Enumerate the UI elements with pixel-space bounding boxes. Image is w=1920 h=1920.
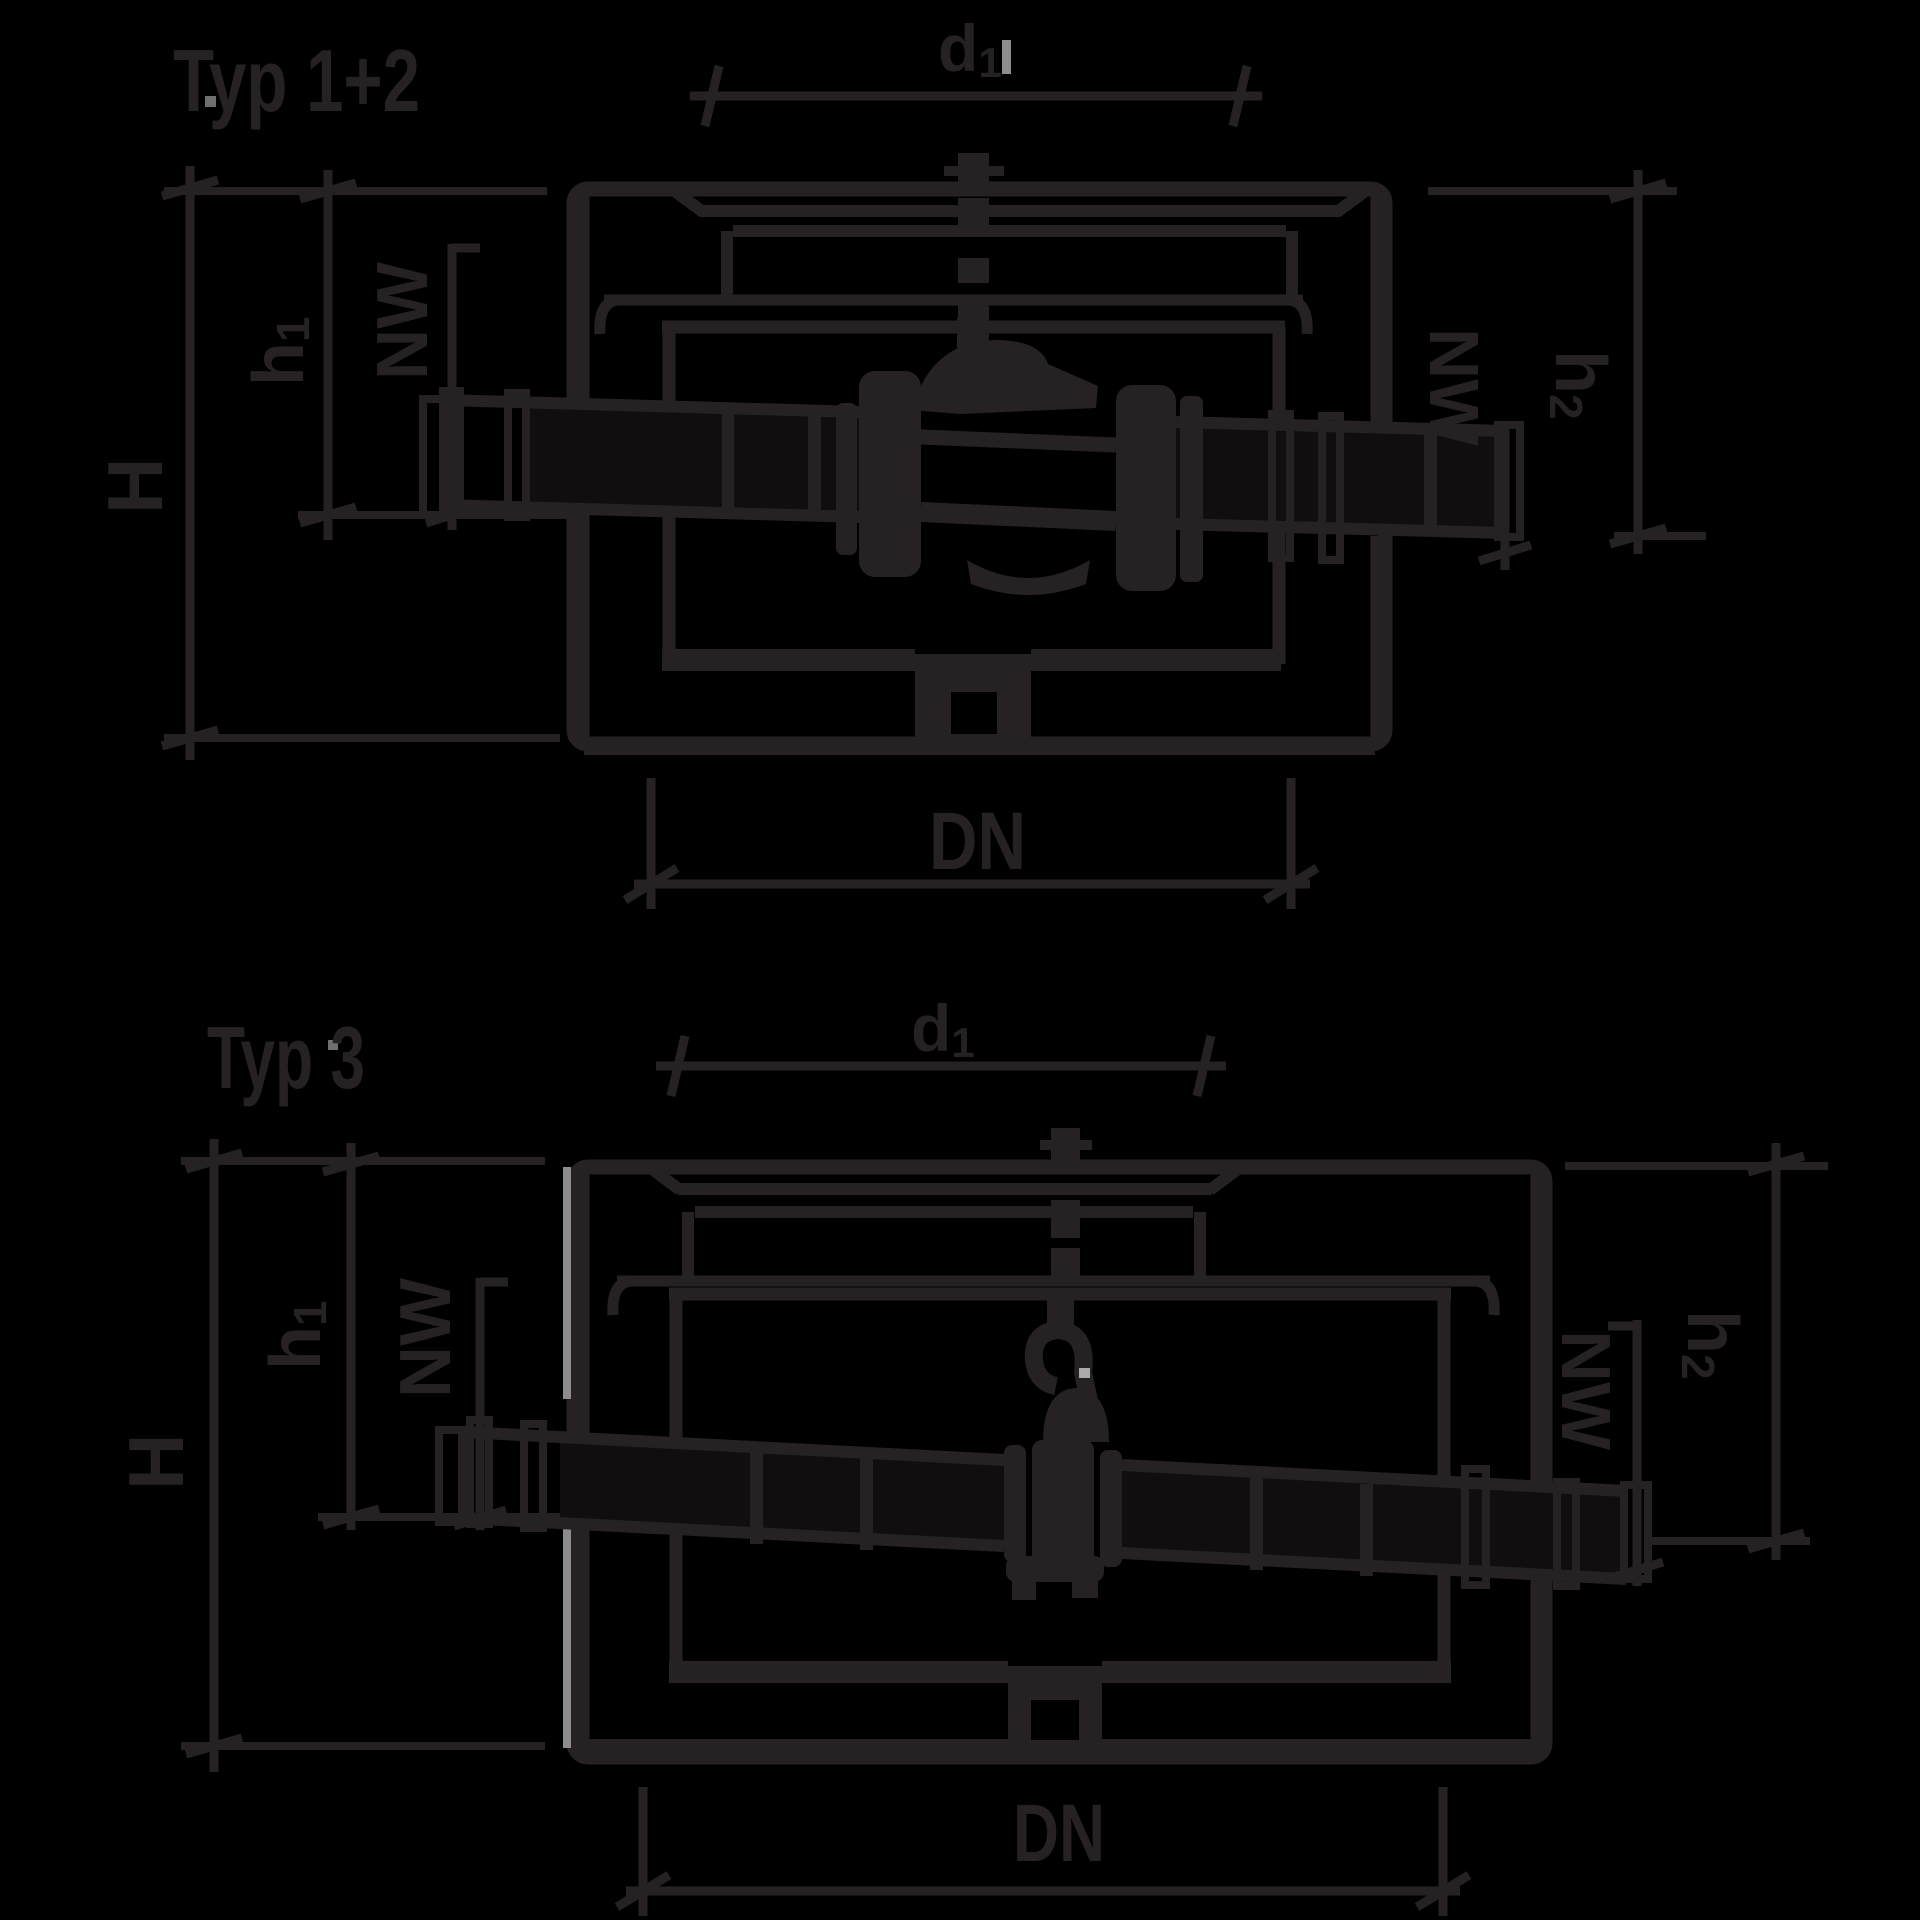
svg-text:NW: NW bbox=[363, 262, 443, 380]
svg-text:DN: DN bbox=[929, 796, 1026, 887]
svg-text:NW: NW bbox=[386, 1278, 466, 1398]
svg-text:Typ 1+2: Typ 1+2 bbox=[173, 31, 420, 130]
svg-text:DN: DN bbox=[1013, 1788, 1105, 1879]
svg-text:H: H bbox=[91, 458, 179, 514]
svg-text:H: H bbox=[112, 1434, 200, 1490]
svg-text:NW: NW bbox=[1547, 1330, 1625, 1450]
svg-text:Typ 3: Typ 3 bbox=[207, 1008, 365, 1107]
